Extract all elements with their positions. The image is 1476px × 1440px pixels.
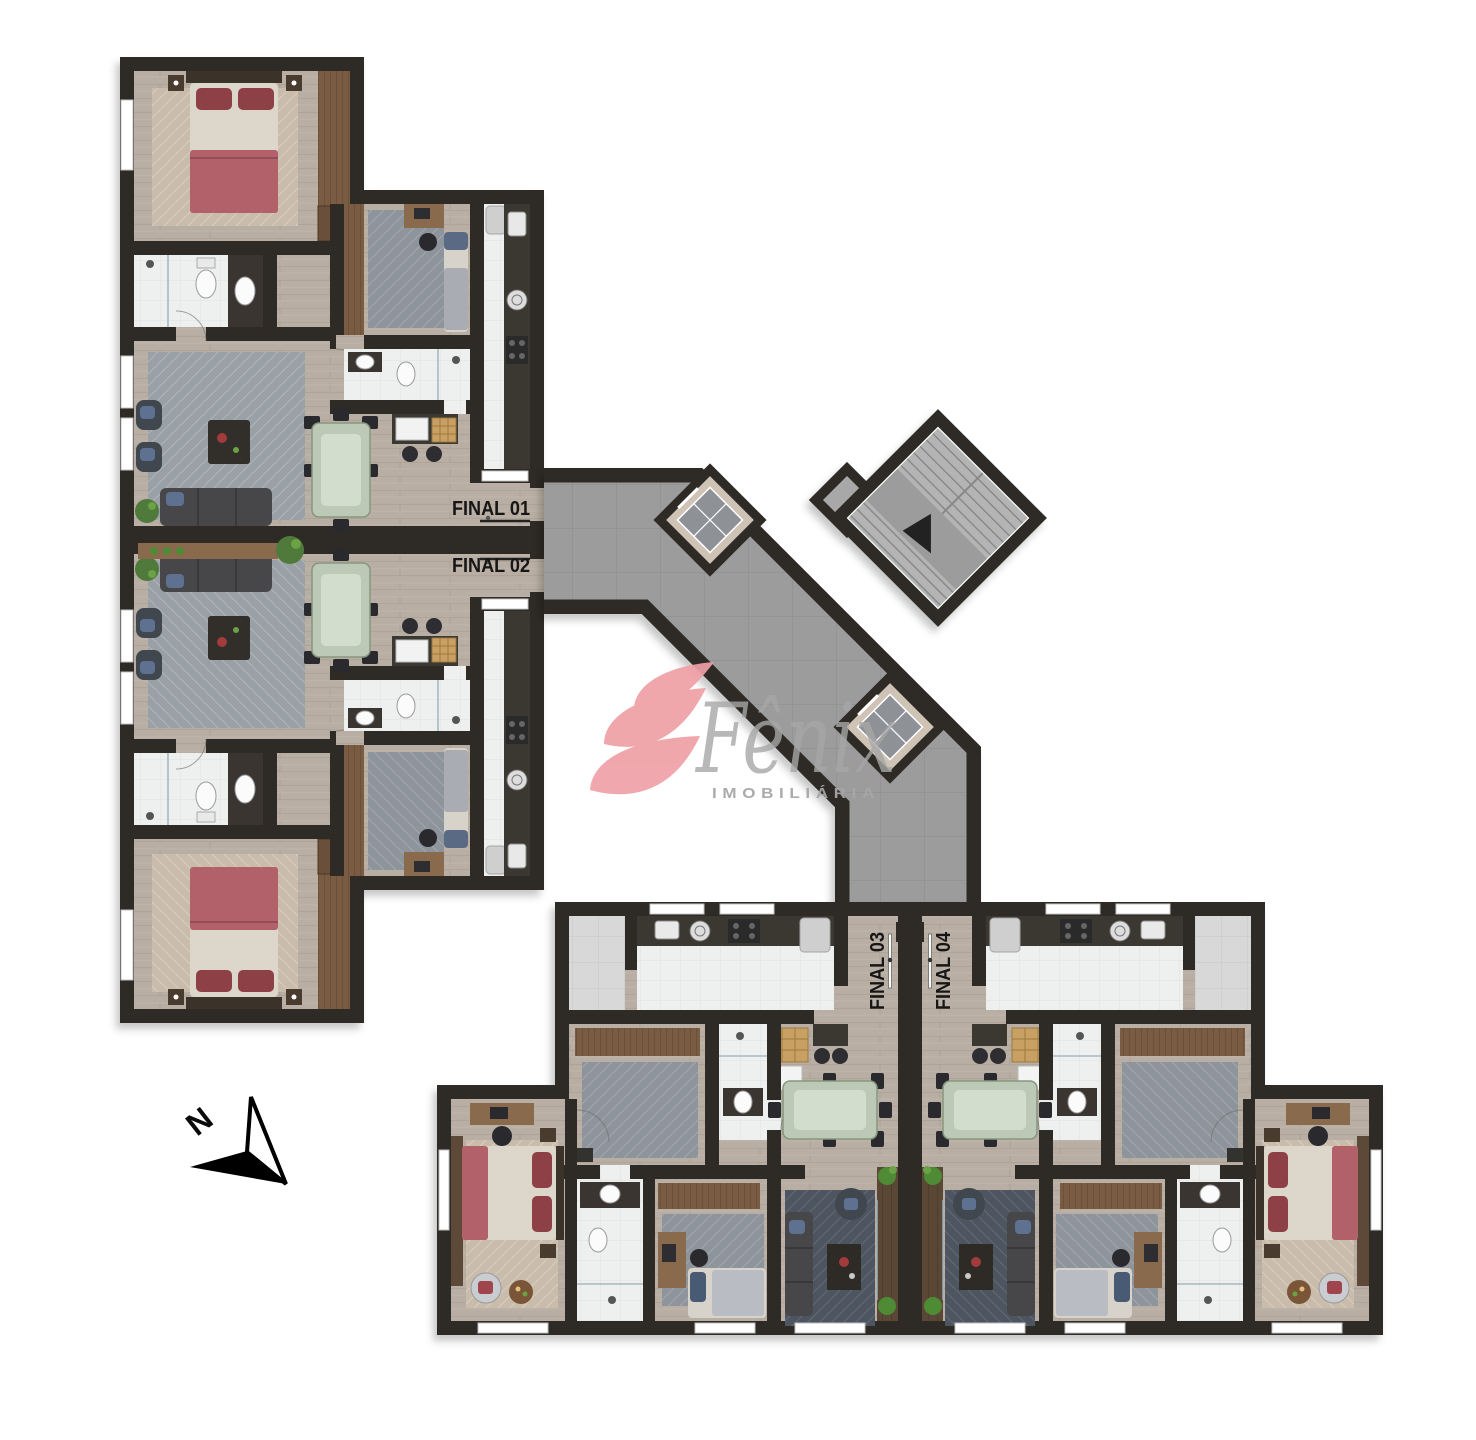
bed-pillow — [532, 1152, 552, 1188]
toilet — [397, 362, 415, 386]
desk-chair — [492, 1126, 512, 1146]
stairwell — [829, 409, 1047, 627]
desk-chair — [690, 1249, 708, 1267]
brand-tagline: IMOBILIÁRIA — [712, 785, 880, 802]
window — [121, 418, 133, 470]
circulation-core — [544, 409, 1047, 936]
desk-chair — [419, 233, 437, 251]
stool — [426, 446, 442, 462]
window — [439, 1150, 449, 1230]
bed-blanket — [462, 1146, 488, 1240]
brand-logo: Fênix IMOBILIÁRIA — [590, 662, 896, 802]
coffee-table — [208, 420, 250, 464]
bed-pillow — [532, 1196, 552, 1232]
unit-final-03 — [437, 902, 910, 1335]
unit-label-final-04: FINAL 04 — [933, 931, 955, 1010]
window — [795, 1323, 865, 1333]
left-block — [120, 57, 544, 1023]
window — [650, 904, 704, 914]
plant — [276, 536, 304, 564]
unit03-living-room — [785, 1188, 875, 1326]
round-table — [509, 1280, 533, 1304]
floor-plan-canvas: Fênix IMOBILIÁRIA FINAL 01 FINAL 02 FINA… — [0, 0, 1476, 1440]
window — [478, 1323, 548, 1333]
bed-headboard — [186, 71, 282, 83]
unit01-bathroom-2 — [330, 349, 484, 414]
unit03-service-terrace — [569, 916, 625, 1010]
bed-pillow — [238, 88, 274, 110]
unit01-master-bedroom — [152, 71, 302, 226]
stove — [506, 336, 528, 364]
north-arrow-icon: N — [179, 1097, 286, 1184]
sink — [734, 1091, 752, 1113]
window — [121, 356, 133, 408]
stool — [832, 1048, 848, 1064]
toilet — [589, 1228, 607, 1252]
unit01-living-room — [135, 352, 305, 526]
sink — [235, 277, 255, 305]
bed-pillow — [196, 88, 232, 110]
wardrobe — [451, 1136, 463, 1286]
unit-final-01 — [120, 57, 544, 540]
unit03-balcony — [877, 1166, 898, 1321]
window — [720, 904, 774, 914]
sink — [600, 1185, 620, 1203]
stool — [814, 1048, 830, 1064]
compass-label: N — [179, 1100, 219, 1143]
plant — [135, 499, 159, 523]
bed-blanket — [190, 150, 278, 213]
toilet — [196, 270, 216, 298]
unit-final-02 — [120, 540, 544, 1023]
brand-name: Fênix — [694, 683, 896, 795]
stool — [402, 446, 418, 462]
shower-head — [608, 1296, 616, 1304]
unit-final-04 — [910, 902, 1383, 1335]
window — [482, 471, 528, 481]
kitchen-sink — [655, 921, 679, 939]
unit03-dining — [768, 1073, 892, 1147]
shower-head — [146, 260, 154, 268]
sink — [356, 355, 374, 369]
stove — [728, 919, 760, 943]
window — [695, 1323, 755, 1333]
bottom-block — [437, 902, 1383, 1335]
kitchen-sink — [508, 212, 526, 236]
fridge — [486, 206, 506, 234]
shower-head — [736, 1032, 744, 1040]
fridge — [800, 918, 830, 952]
window — [121, 100, 133, 170]
bed-headboard — [556, 1146, 564, 1240]
pizza-oven — [432, 418, 456, 442]
unit03-bedroom-2 — [575, 1024, 719, 1165]
floor-plan-svg: Fênix IMOBILIÁRIA FINAL 01 FINAL 02 FINA… — [0, 0, 1476, 1440]
unit-label-final-03: FINAL 03 — [867, 932, 889, 1010]
plant — [878, 1297, 896, 1315]
unit-label-final-02: FINAL 02 — [452, 555, 530, 577]
unit-label-final-01: FINAL 01 — [452, 498, 530, 520]
